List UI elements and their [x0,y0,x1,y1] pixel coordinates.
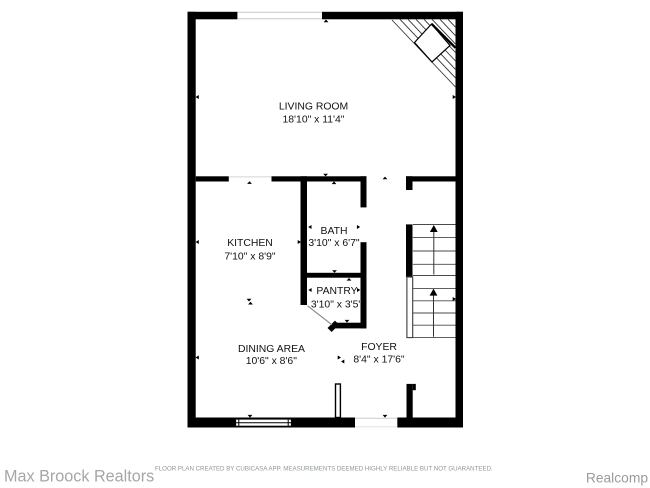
svg-text:BATH: BATH [321,226,348,237]
svg-text:FLOOR PLAN CREATED BY CUBICASA: FLOOR PLAN CREATED BY CUBICASA APP. MEAS… [155,465,493,472]
svg-text:18'10" x 11'4": 18'10" x 11'4" [283,115,345,126]
svg-text:FOYER: FOYER [361,342,397,353]
svg-text:DINING AREA: DINING AREA [238,344,305,355]
svg-text:10'6" x 8'6": 10'6" x 8'6" [246,356,298,367]
svg-text:3'10" x 6'7": 3'10" x 6'7" [308,238,360,249]
svg-text:PANTRY: PANTRY [316,286,357,297]
svg-text:3'10" x 3'5": 3'10" x 3'5" [311,299,363,310]
svg-text:Realcomp: Realcomp [586,471,648,486]
svg-text:LIVING ROOM: LIVING ROOM [279,101,348,112]
svg-text:KITCHEN: KITCHEN [227,238,273,249]
svg-text:7'10" x 8'9": 7'10" x 8'9" [224,252,276,263]
svg-text:8'4" x 17'6": 8'4" x 17'6" [353,354,405,365]
svg-text:Max Broock Realtors: Max Broock Realtors [4,468,154,486]
